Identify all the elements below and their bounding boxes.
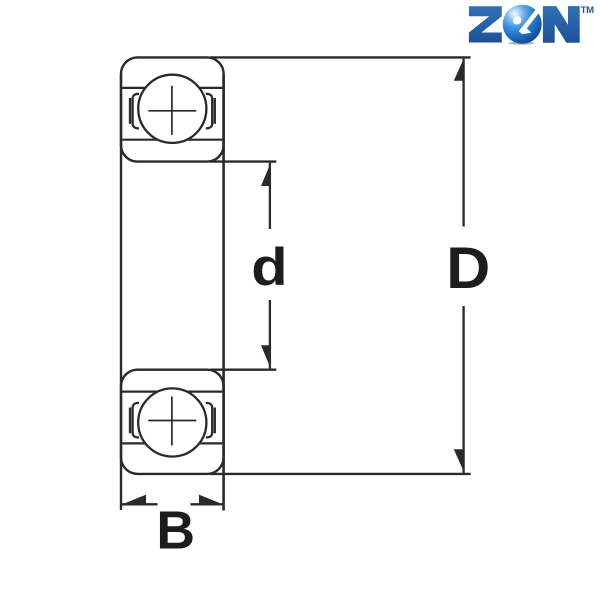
svg-text:B: B [156,502,195,561]
svg-text:TM: TM [581,5,595,16]
svg-text:D: D [446,235,490,300]
svg-text:d: d [251,237,287,296]
